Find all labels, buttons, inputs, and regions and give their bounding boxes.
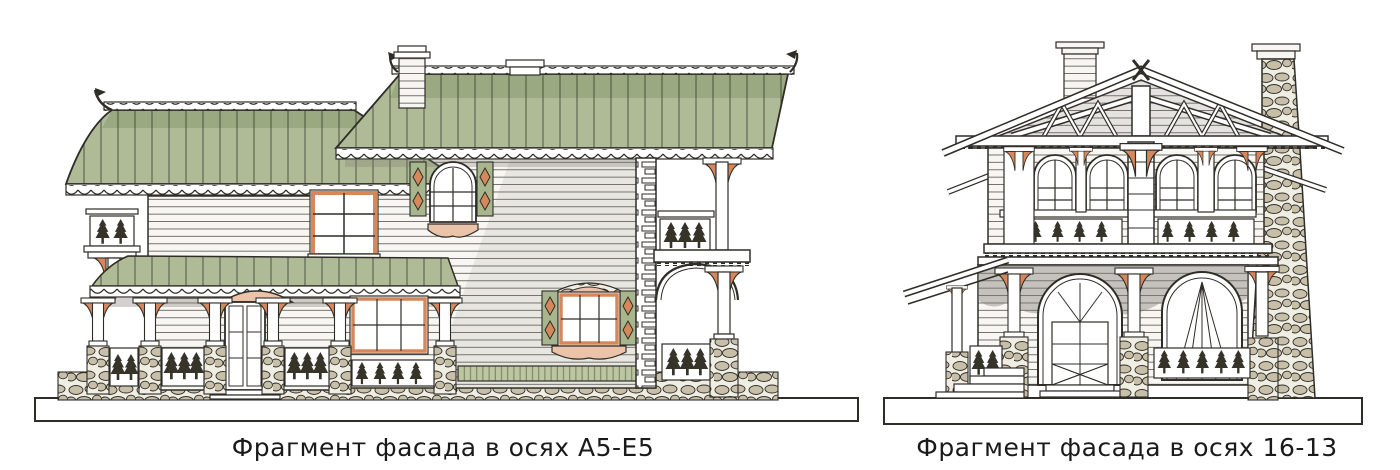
right-facade-drawing <box>884 42 1362 424</box>
facade-elevations-svg: Фрагмент фасада в осях А5-Е5 Фрагмент фа… <box>0 0 1400 470</box>
chimney <box>394 46 430 108</box>
entry-door-arched <box>1038 274 1122 397</box>
main-roof <box>336 46 797 167</box>
right-caption: Фрагмент фасада в осях 16-13 <box>916 433 1337 462</box>
window-shuttered <box>542 283 636 359</box>
loggia-upper <box>988 142 1267 252</box>
right-porch <box>654 158 750 397</box>
porch-window <box>350 296 428 354</box>
left-caption: Фрагмент фасада в осях А5-Е5 <box>232 433 654 462</box>
left-facade-drawing <box>35 46 858 421</box>
roof-vent <box>506 60 544 75</box>
architectural-sheet: Фрагмент фасада в осях А5-Е5 Фрагмент фа… <box>0 0 1400 470</box>
ground-platform <box>884 398 1362 424</box>
ground-platform <box>35 398 858 421</box>
balustrade-lower <box>1154 348 1250 378</box>
corner-logs <box>636 158 656 388</box>
lattice-band <box>458 366 648 381</box>
window-upper-left <box>308 190 380 260</box>
cornice <box>978 244 1278 265</box>
